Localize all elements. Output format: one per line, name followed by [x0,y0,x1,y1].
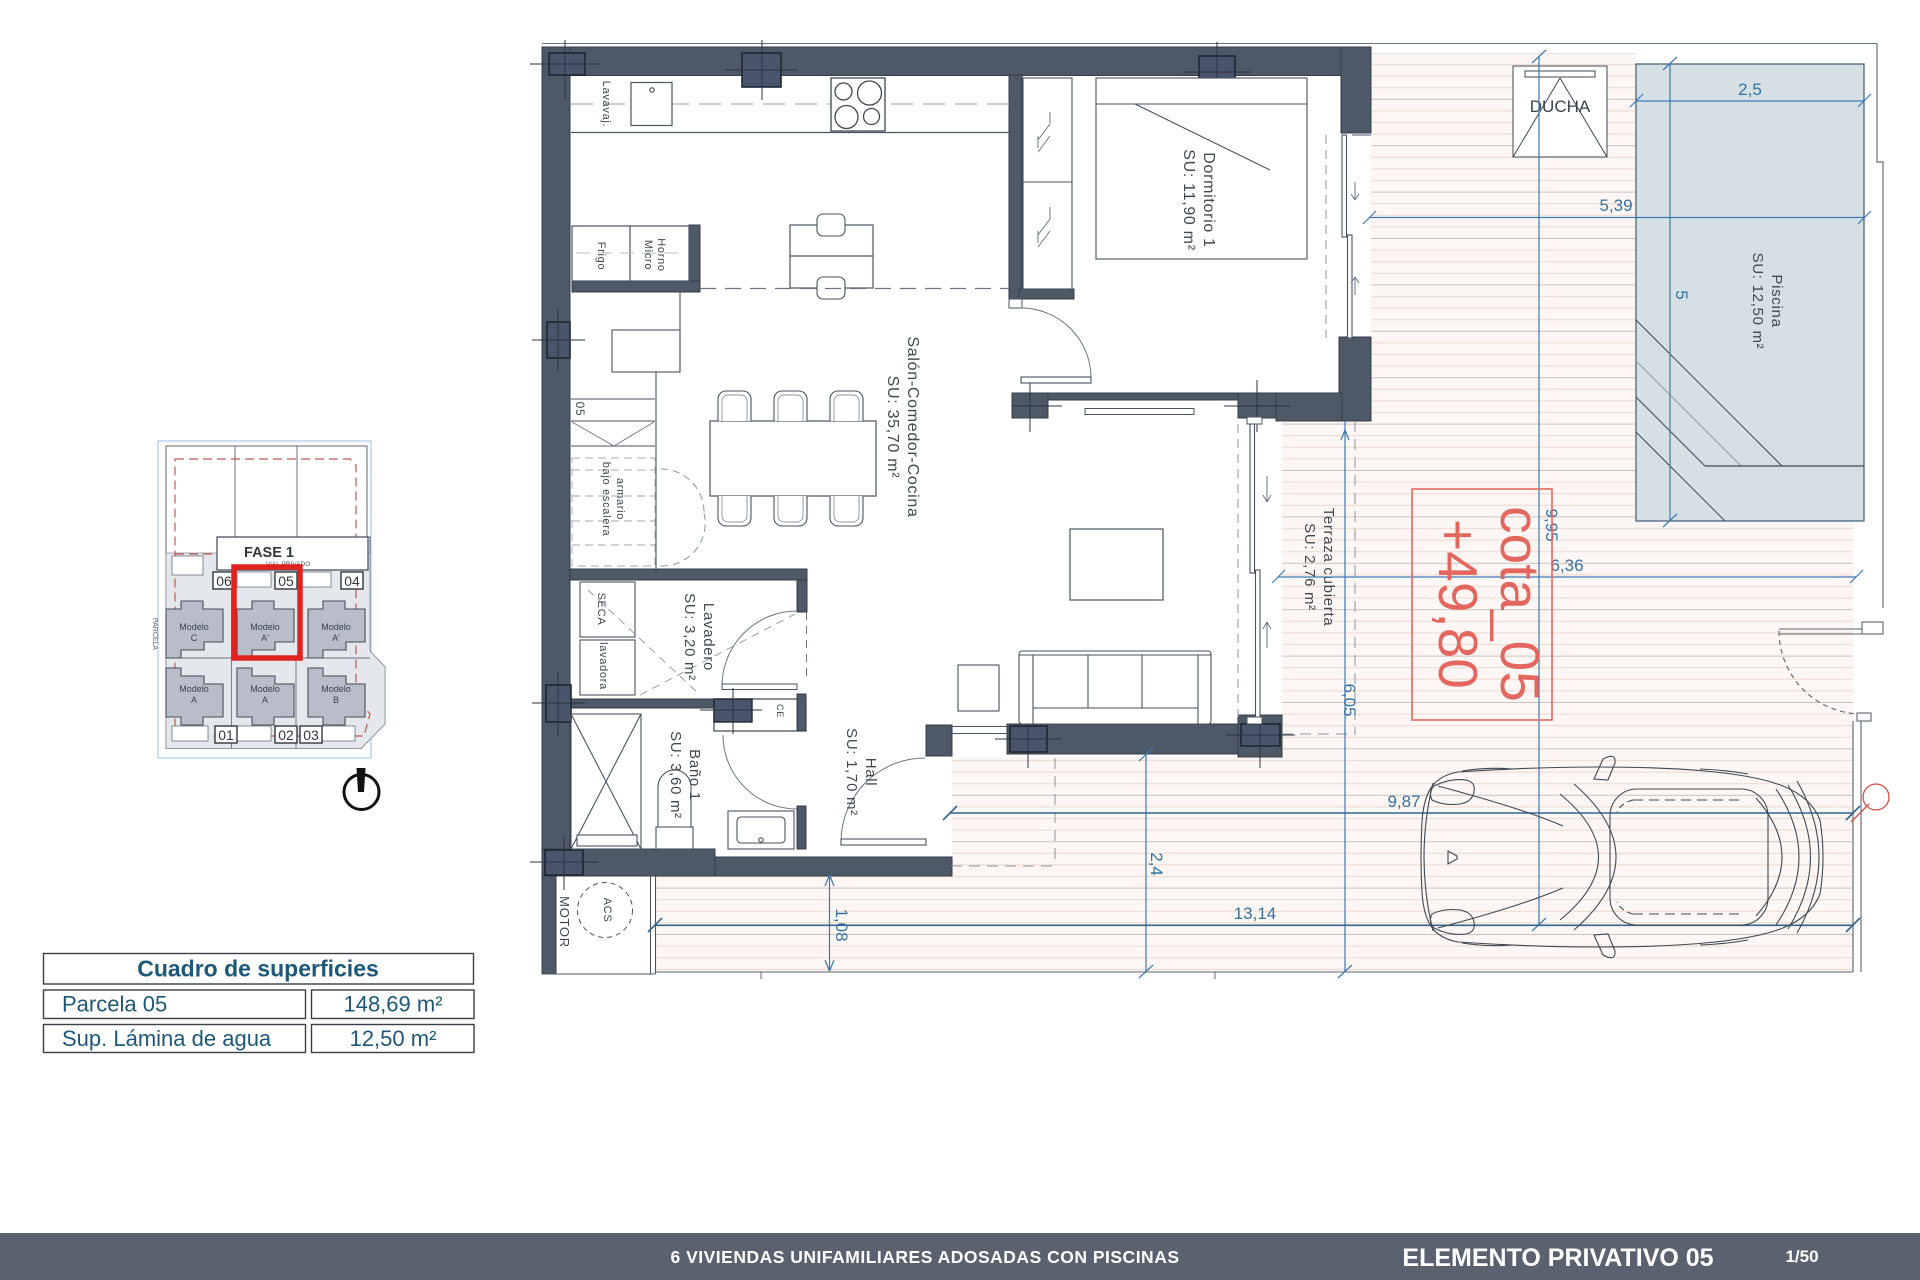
svg-text:148,69 m²: 148,69 m² [343,992,442,1017]
svg-text:MOTOR: MOTOR [557,896,572,948]
svg-text:C: C [191,633,198,643]
svg-text:HallSU: 1,70 m²: HallSU: 1,70 m² [843,728,879,816]
svg-text:Sup. Lámina de agua: Sup. Lámina de agua [62,1026,272,1051]
svg-text:6,36: 6,36 [1550,556,1583,575]
svg-text:cota_05+49,80: cota_05+49,80 [1427,506,1551,702]
svg-text:05: 05 [573,402,587,417]
svg-text:ACS: ACS [601,898,613,923]
svg-text:1,08: 1,08 [832,908,851,941]
svg-text:6,05: 6,05 [1340,683,1359,716]
svg-text:2,4: 2,4 [1147,852,1166,876]
svg-text:HornoMicro: HornoMicro [642,238,667,271]
svg-text:Parcela 05: Parcela 05 [62,992,167,1017]
svg-text:PARCELA: PARCELA [151,618,158,650]
svg-text:Modelo: Modelo [179,684,209,694]
svg-text:01: 01 [218,727,234,743]
svg-text:12,50 m²: 12,50 m² [350,1026,437,1051]
svg-text:Modelo: Modelo [321,684,351,694]
svg-text:Cuadro de superficies: Cuadro de superficies [137,956,379,982]
svg-text:2,5: 2,5 [1738,80,1762,99]
svg-text:A: A [191,695,197,705]
svg-text:A: A [262,695,268,705]
svg-text:9,87: 9,87 [1387,792,1420,811]
svg-text:FASE 1: FASE 1 [244,545,294,561]
svg-text:6 VIVIENDAS UNIFAMILIARES ADOS: 6 VIVIENDAS UNIFAMILIARES ADOSADAS CON P… [670,1247,1179,1267]
svg-text:Frigo: Frigo [595,242,607,271]
svg-text:LavaderoSU: 3,20 m²: LavaderoSU: 3,20 m² [681,593,717,681]
svg-text:CE: CE [775,704,785,718]
svg-text:Modelo: Modelo [250,684,280,694]
svg-text:armariobajo escalera: armariobajo escalera [600,462,626,537]
svg-text:A': A' [261,633,269,643]
svg-text:Modelo: Modelo [321,622,351,632]
svg-text:1/50: 1/50 [1785,1247,1818,1266]
svg-text:Modelo: Modelo [179,622,209,632]
svg-text:A': A' [332,633,340,643]
svg-text:03: 03 [303,727,319,743]
svg-text:05: 05 [278,573,294,589]
svg-text:lavadora: lavadora [597,642,609,690]
svg-text:5,39: 5,39 [1599,196,1632,215]
svg-text:Modelo: Modelo [250,622,280,632]
svg-text:02: 02 [278,727,294,743]
svg-text:Lavavaj.: Lavavaj. [600,81,612,128]
svg-text:Salón-Comedor-CocinaSU: 35,70: Salón-Comedor-CocinaSU: 35,70 m² [884,336,921,517]
svg-text:ELEMENTO PRIVATIVO 05: ELEMENTO PRIVATIVO 05 [1402,1244,1713,1272]
svg-text:04: 04 [344,573,360,589]
svg-text:B: B [333,695,339,705]
svg-text:06: 06 [216,573,232,589]
svg-text:13,14: 13,14 [1234,904,1277,923]
svg-text:5: 5 [1672,290,1691,299]
svg-text:SECA: SECA [595,593,607,626]
